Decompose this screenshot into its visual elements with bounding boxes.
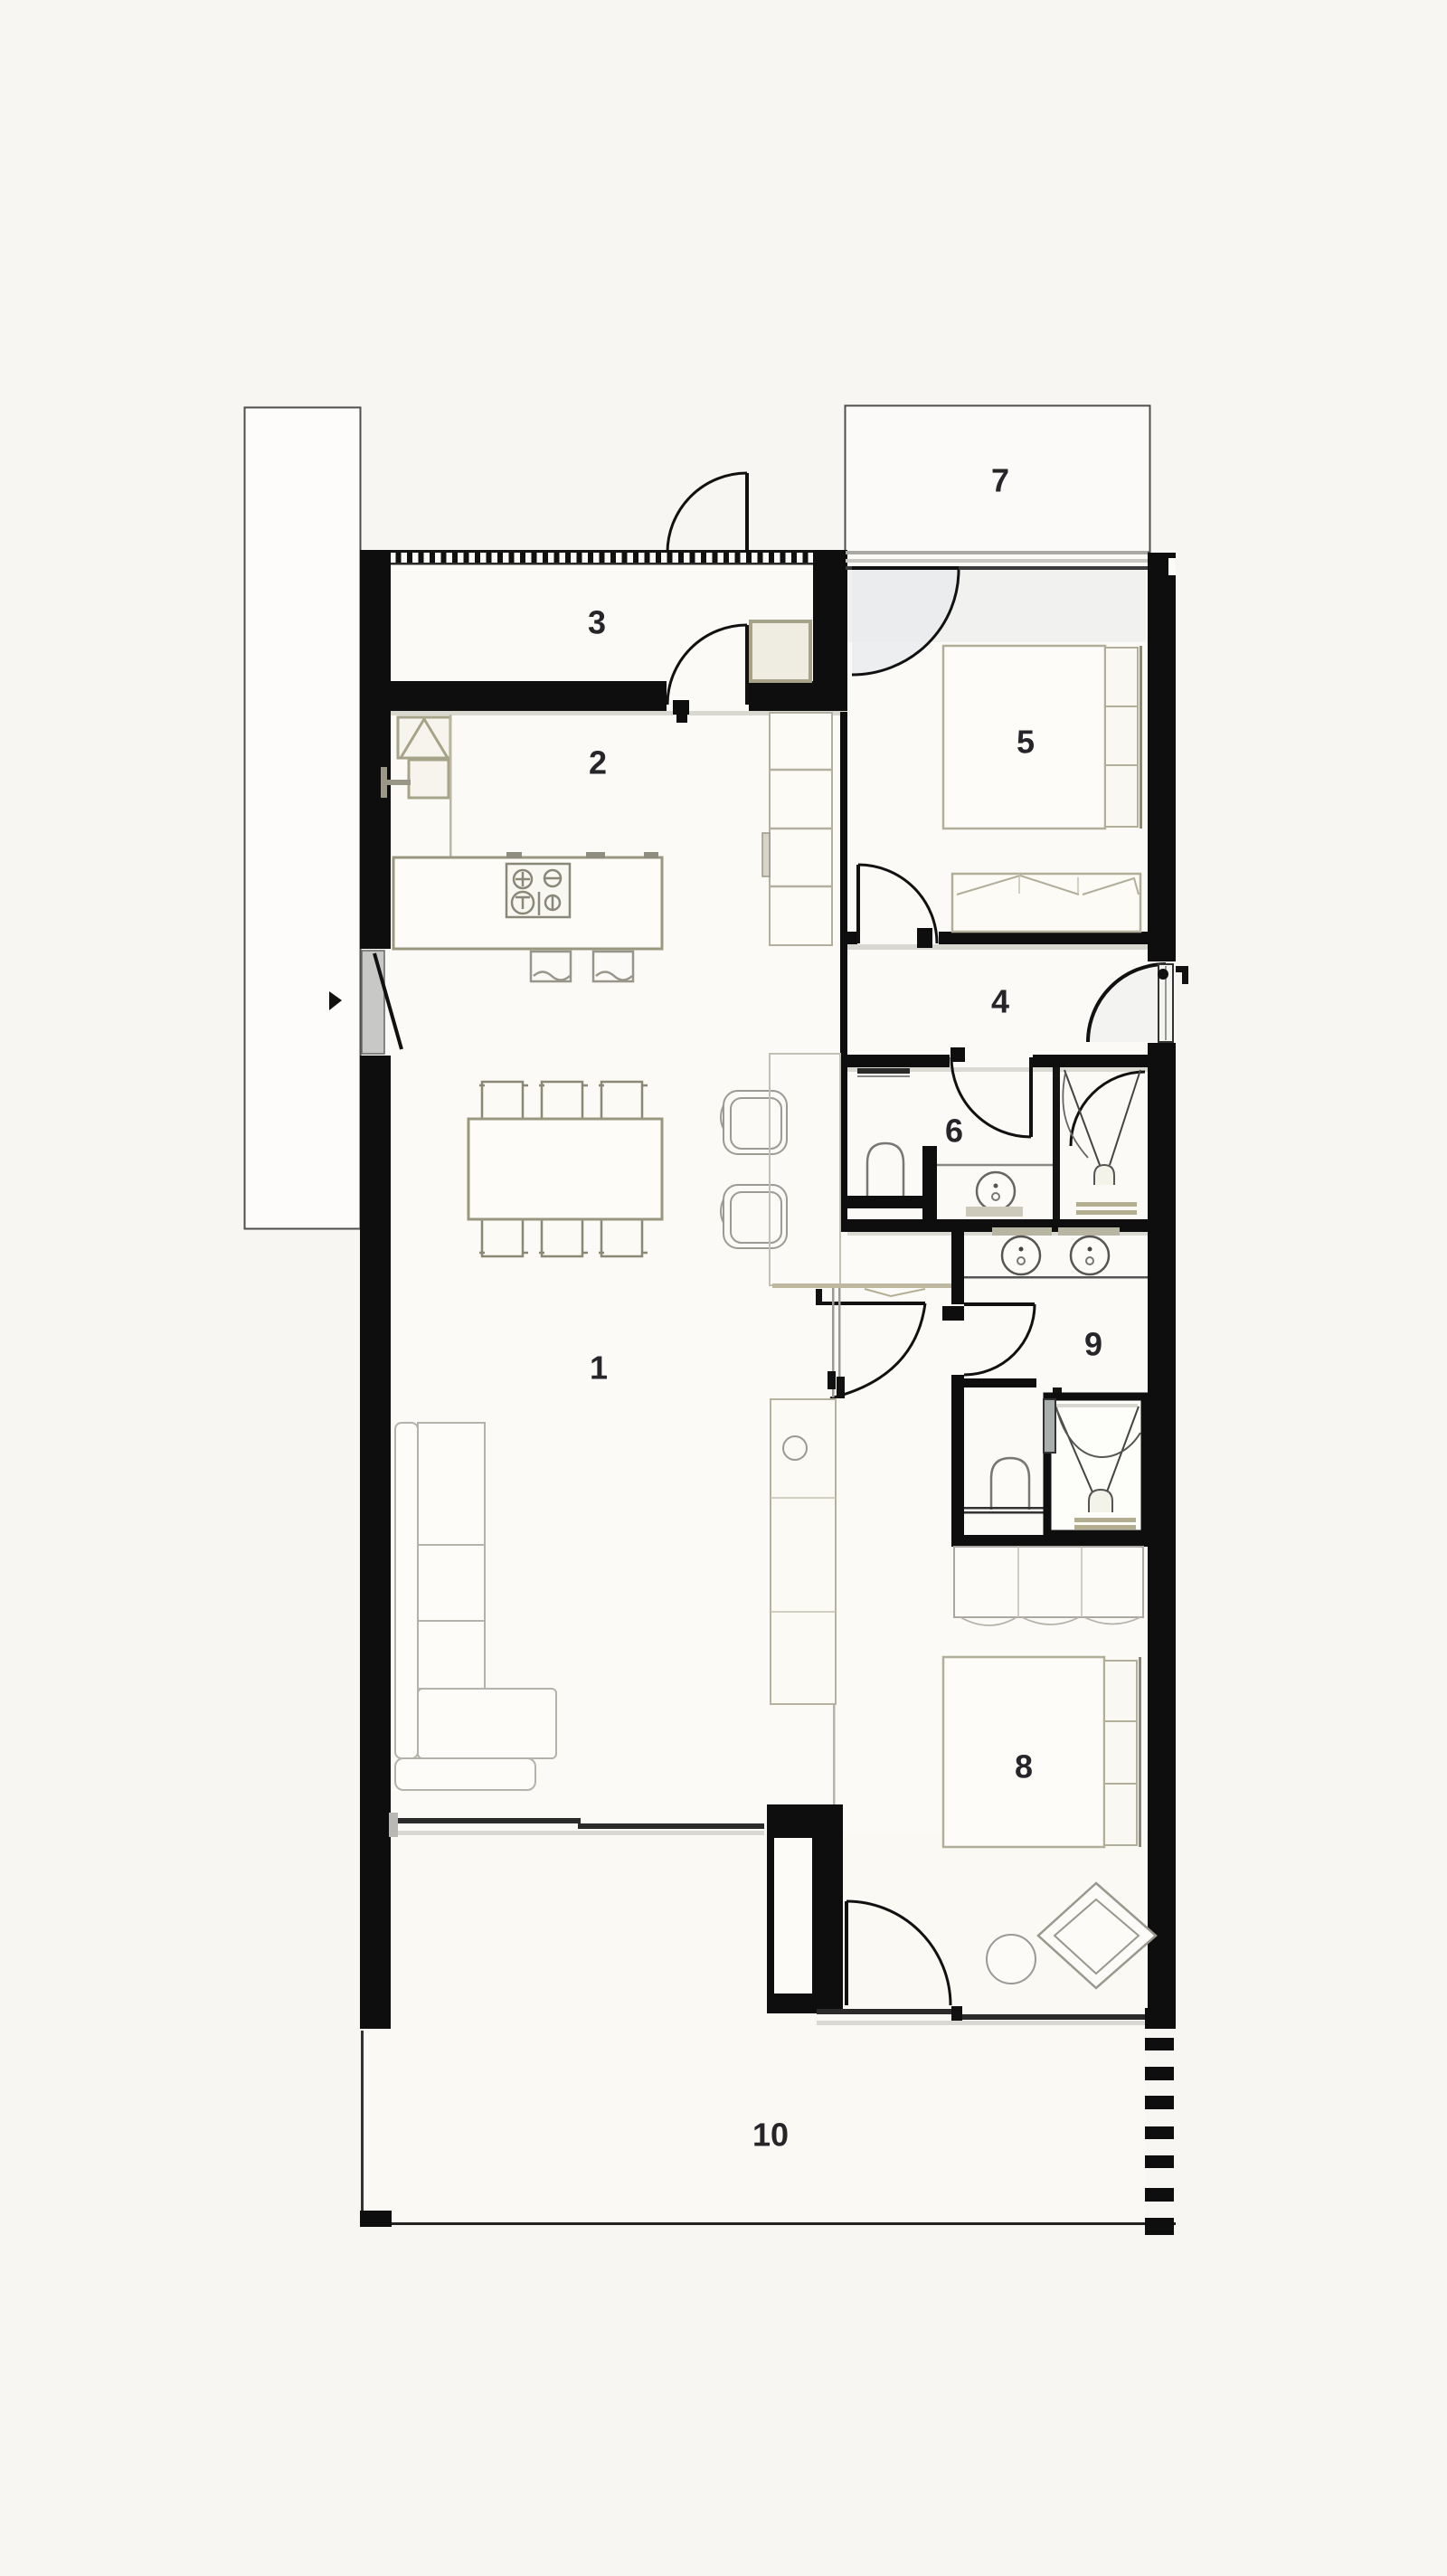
svg-text:3: 3	[588, 604, 606, 641]
svg-text:4: 4	[991, 983, 1009, 1020]
svg-text:1: 1	[590, 1350, 608, 1387]
svg-text:8: 8	[1015, 1748, 1033, 1785]
svg-text:7: 7	[991, 462, 1009, 499]
svg-text:10: 10	[752, 2117, 789, 2154]
svg-text:9: 9	[1084, 1326, 1102, 1363]
svg-text:6: 6	[945, 1113, 963, 1150]
svg-text:5: 5	[1017, 724, 1035, 761]
svg-text:2: 2	[589, 744, 607, 781]
